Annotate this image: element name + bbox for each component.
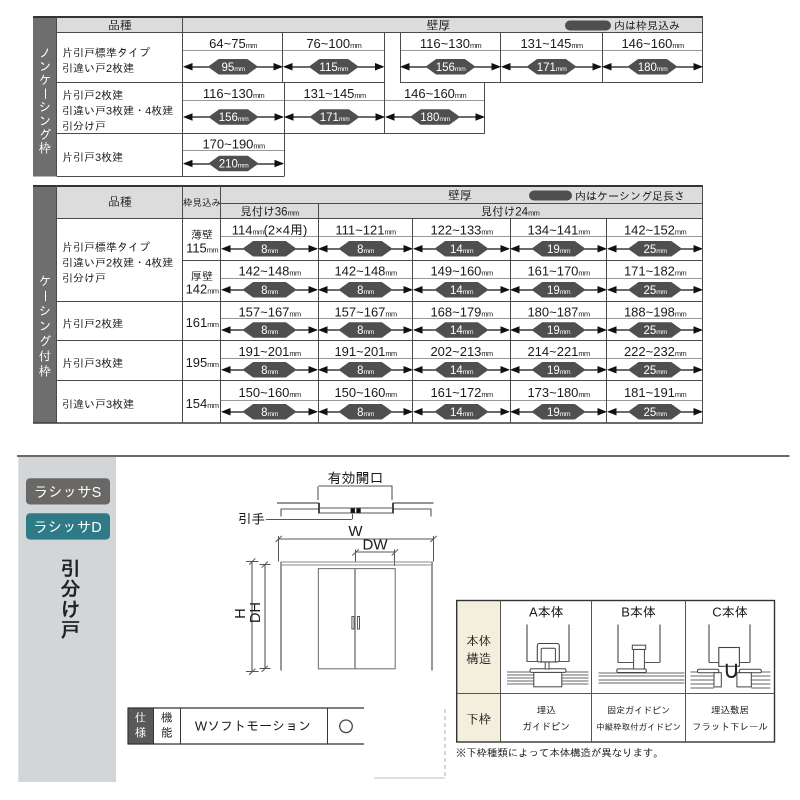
svg-text:142~152mm: 142~152mm [624, 222, 687, 237]
svg-text:薄壁: 薄壁 [191, 230, 213, 241]
svg-text:188~198mm: 188~198mm [624, 305, 687, 320]
svg-text:149~160mm: 149~160mm [430, 264, 493, 279]
svg-text:片引戸2枚建: 片引戸2枚建 [62, 90, 123, 101]
svg-text:固定ガイドピン: 固定ガイドピン [607, 705, 670, 715]
svg-text:150~160mm: 150~160mm [334, 385, 397, 400]
svg-text:154mm: 154mm [186, 396, 219, 411]
svg-text:片引戸2枚建: 片引戸2枚建 [62, 318, 123, 329]
svg-text:202~213mm: 202~213mm [430, 344, 493, 359]
svg-text:厚壁: 厚壁 [191, 271, 213, 282]
svg-text:191~201mm: 191~201mm [238, 344, 301, 359]
svg-text:埋込敷居: 埋込敷居 [711, 704, 750, 715]
svg-text:Wソフトモーション: Wソフトモーション [195, 719, 311, 734]
svg-text:ラシッサS: ラシッサS [34, 484, 102, 501]
svg-text:中縦枠取付ガイドピン: 中縦枠取付ガイドピン [596, 722, 681, 732]
svg-text:壁厚: 壁厚 [427, 20, 451, 32]
svg-text:76~100mm: 76~100mm [306, 36, 361, 51]
svg-text:内は枠見込み: 内は枠見込み [614, 21, 680, 32]
svg-text:H: H [233, 608, 249, 618]
svg-text:116~130mm: 116~130mm [420, 36, 482, 51]
svg-text:ケ: ケ [39, 275, 52, 288]
svg-text:シ: シ [39, 101, 52, 114]
svg-text:150~160mm: 150~160mm [238, 385, 301, 400]
svg-text:122~133mm: 122~133mm [430, 222, 493, 237]
svg-text:引: 引 [61, 558, 81, 578]
svg-text:ー: ー [39, 87, 52, 100]
svg-text:グ: グ [39, 127, 52, 141]
svg-text:引手: 引手 [238, 512, 266, 526]
svg-text:131~145mm: 131~145mm [303, 86, 366, 101]
svg-text:116~130mm: 116~130mm [203, 86, 265, 101]
svg-text:161mm: 161mm [186, 315, 219, 330]
svg-text:168~179mm: 168~179mm [430, 305, 493, 320]
svg-text:134~141mm: 134~141mm [527, 222, 590, 237]
svg-text:222~232mm: 222~232mm [624, 344, 687, 359]
svg-text:191~201mm: 191~201mm [334, 344, 397, 359]
svg-text:片引戸3枚建: 片引戸3枚建 [62, 152, 123, 163]
svg-text:引違い戸2枚建: 引違い戸2枚建 [62, 63, 134, 74]
svg-text:181~191mm: 181~191mm [624, 385, 687, 400]
svg-text:DH: DH [248, 602, 264, 623]
svg-text:ケ: ケ [39, 74, 52, 87]
svg-text:片引戸標準タイプ: 片引戸標準タイプ [62, 46, 150, 58]
svg-text:161~170mm: 161~170mm [527, 264, 590, 279]
svg-text:能: 能 [161, 726, 173, 739]
svg-text:品種: 品種 [108, 20, 132, 32]
svg-text:下枠: 下枠 [466, 713, 492, 726]
svg-text:ノ: ノ [39, 46, 52, 59]
svg-text:内はケーシング足長さ: 内はケーシング足長さ [575, 191, 685, 202]
svg-text:214~221mm: 214~221mm [527, 344, 590, 359]
svg-text:173~180mm: 173~180mm [527, 385, 590, 400]
svg-text:引分け戸: 引分け戸 [62, 121, 106, 132]
svg-text:引分け戸: 引分け戸 [62, 273, 106, 284]
svg-text:仕: 仕 [135, 711, 147, 724]
svg-text:114mm(2×4用): 114mm(2×4用) [232, 222, 308, 237]
svg-text:131~145mm: 131~145mm [520, 36, 583, 51]
svg-text:壁厚: 壁厚 [448, 190, 472, 202]
svg-text:111~121mm: 111~121mm [335, 222, 396, 237]
svg-text:様: 様 [135, 727, 147, 739]
svg-text:片引戸3枚建: 片引戸3枚建 [62, 358, 123, 369]
svg-text:180~187mm: 180~187mm [527, 305, 590, 320]
svg-text:ラシッサD: ラシッサD [33, 519, 101, 536]
svg-text:有効開口: 有効開口 [328, 471, 384, 485]
svg-text:ガイドピン: ガイドピン [523, 721, 571, 732]
svg-text:171~182mm: 171~182mm [624, 264, 687, 279]
svg-text:分: 分 [61, 579, 81, 599]
svg-text:170~190mm: 170~190mm [202, 136, 265, 151]
svg-text:付: 付 [39, 350, 52, 363]
svg-text:枠: 枠 [39, 142, 52, 155]
svg-text:ー: ー [39, 290, 52, 303]
svg-text:157~167mm: 157~167mm [238, 305, 301, 320]
svg-text:※下枠種類によって本体構造が異なります。: ※下枠種類によって本体構造が異なります。 [456, 748, 664, 759]
svg-text:DW: DW [363, 537, 389, 554]
svg-text:フラット下レール: フラット下レール [692, 722, 769, 732]
svg-text:142~148mm: 142~148mm [238, 264, 301, 279]
svg-text:W: W [348, 523, 363, 540]
svg-text:142~148mm: 142~148mm [334, 264, 397, 279]
svg-text:B本体: B本体 [621, 605, 656, 620]
svg-text:戸: 戸 [61, 620, 81, 640]
svg-text:195mm: 195mm [186, 355, 219, 370]
svg-text:け: け [61, 599, 81, 619]
svg-text:ン: ン [39, 320, 52, 333]
svg-text:C本体: C本体 [712, 605, 747, 620]
svg-text:グ: グ [39, 334, 52, 348]
svg-text:161~172mm: 161~172mm [430, 385, 493, 400]
svg-text:142mm: 142mm [186, 282, 219, 297]
svg-text:品種: 品種 [108, 196, 132, 208]
svg-text:枠: 枠 [39, 365, 52, 378]
svg-text:引違い戸3枚建・4枚建: 引違い戸3枚建・4枚建 [62, 105, 173, 116]
svg-text:64~75mm: 64~75mm [209, 36, 257, 51]
svg-text:構造: 構造 [466, 652, 492, 665]
svg-text:片引戸標準タイプ: 片引戸標準タイプ [62, 241, 150, 253]
svg-text:146~160mm: 146~160mm [404, 86, 467, 101]
svg-text:埋込: 埋込 [537, 704, 557, 715]
svg-text:ン: ン [39, 114, 52, 127]
svg-text:引違い戸3枚建: 引違い戸3枚建 [62, 399, 134, 410]
svg-text:枠見込み: 枠見込み [183, 197, 222, 208]
svg-text:A本体: A本体 [529, 605, 564, 620]
svg-text:157~167mm: 157~167mm [334, 305, 397, 320]
svg-text:機: 機 [161, 712, 173, 724]
svg-text:115mm: 115mm [186, 240, 218, 255]
svg-text:146~160mm: 146~160mm [621, 36, 684, 51]
svg-text:ン: ン [39, 60, 52, 73]
svg-text:本体: 本体 [466, 633, 492, 647]
svg-text:シ: シ [39, 305, 52, 318]
svg-text:引違い戸2枚建・4枚建: 引違い戸2枚建・4枚建 [62, 257, 173, 268]
